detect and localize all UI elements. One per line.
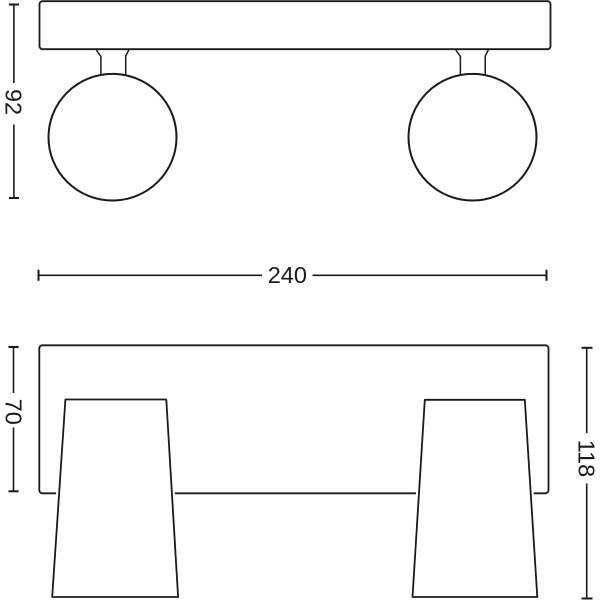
svg-text:92: 92 — [1, 89, 27, 115]
svg-text:118: 118 — [574, 440, 600, 477]
svg-text:240: 240 — [268, 262, 307, 288]
svg-text:70: 70 — [0, 399, 26, 425]
